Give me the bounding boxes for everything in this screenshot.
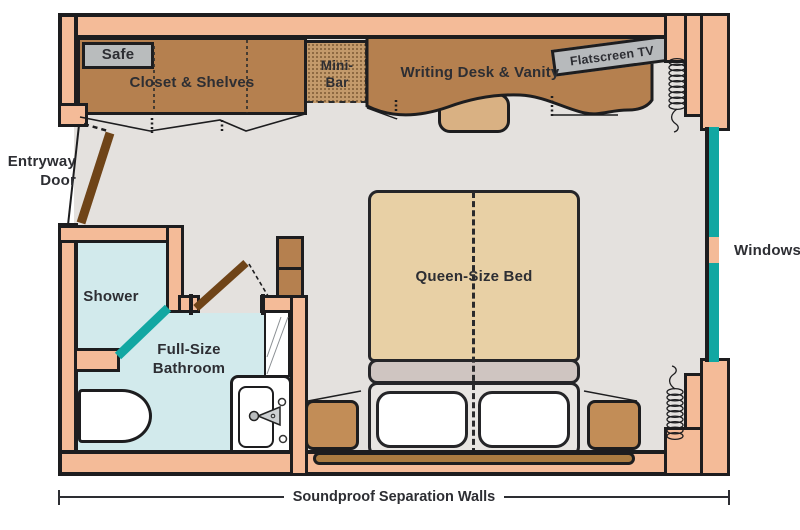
wall-step-top-right [700,13,730,131]
door-jamb-tick [189,294,193,315]
floor-plan: Flatscreen TV [0,0,800,530]
safe-label: Safe [82,46,154,65]
dimension-line [60,496,284,498]
entry-door-jamb [58,103,88,127]
bathroom-cabinet [276,236,304,302]
nightstand-left [305,400,359,450]
outer-wall-top [58,13,730,39]
window-glass-lower [709,263,719,362]
closet-label: Closet & Shelves [97,74,287,93]
shower-wall-stub [74,348,120,372]
desk-chair [438,93,510,133]
windows-label: Windows [734,242,800,261]
soundproof-dimension-line: Soundproof Separation Walls [58,488,730,506]
bed-label: Queen-Size Bed [398,268,550,287]
entryway-door-label: Entryway Door [0,153,76,191]
soundproof-label: Soundproof Separation Walls [284,489,504,505]
bathroom-label: Full-Size Bathroom [141,341,237,379]
desk-label: Writing Desk & Vanity [388,64,572,83]
minibar-label: Mini-Bar [311,58,363,92]
shower-label: Shower [78,288,144,307]
nightstand-right [587,400,641,450]
wall-step-bottom-right [700,358,730,476]
window-mullion [709,237,719,263]
pillow-left [376,391,468,448]
bathroom-wall-right [290,295,308,476]
door-jamb-tick [261,294,265,315]
pillow-right [478,391,570,448]
window-glass-upper [709,127,719,237]
bathroom-wall-top [58,225,169,243]
bathroom-mirror [264,311,290,377]
bed-center-divider [472,192,475,454]
toilet [78,389,152,443]
tv-label: Flatscreen TV [569,43,655,68]
dimension-tick [728,490,730,505]
bed-headboard [313,452,635,465]
cabinet-shelf-divider [279,239,301,270]
sink-basin [238,386,274,448]
dimension-line [504,496,728,498]
